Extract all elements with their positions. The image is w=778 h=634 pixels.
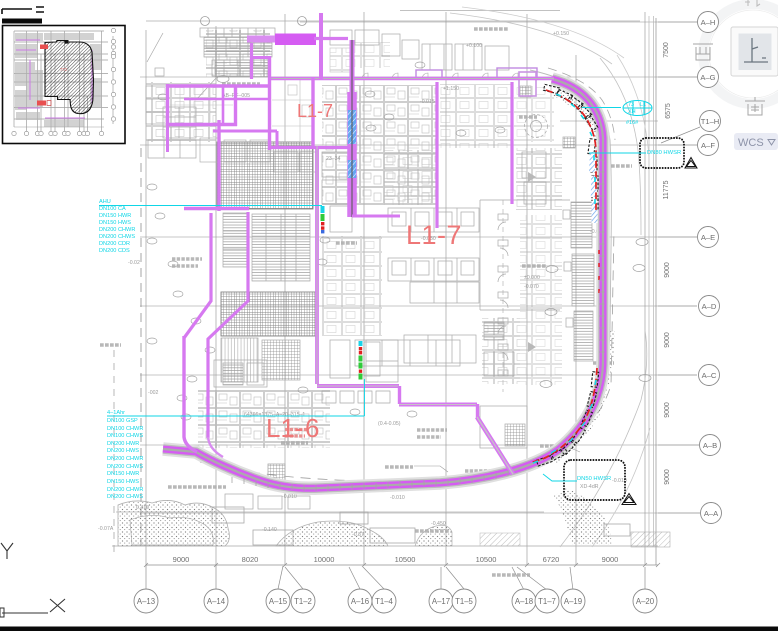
- svg-text:DN200 CHWR: DN200 CHWR: [99, 227, 135, 233]
- svg-text:9000: 9000: [173, 555, 190, 564]
- svg-text:10500: 10500: [476, 555, 497, 564]
- svg-text:DN150 HWS: DN150 HWS: [107, 479, 139, 485]
- svg-text:4–1Ahr: 4–1Ahr: [107, 410, 125, 416]
- svg-text:6575: 6575: [665, 103, 672, 119]
- svg-text:WCS: WCS: [738, 137, 764, 149]
- svg-text:DN150 HWR: DN150 HWR: [99, 213, 131, 219]
- svg-text:DN200 CHWS: DN200 CHWS: [99, 234, 135, 240]
- svg-text:T1–2: T1–2: [294, 597, 312, 606]
- svg-text:A–A: A–A: [704, 509, 719, 518]
- svg-text:DN200 CHWR: DN200 CHWR: [107, 456, 143, 462]
- svg-text:6720: 6720: [543, 555, 560, 564]
- svg-text:A–G: A–G: [700, 73, 715, 82]
- svg-text:A–18: A–18: [515, 597, 533, 606]
- svg-text:-0.37: -0.37: [352, 532, 364, 538]
- svg-text:L1-7: L1-7: [297, 101, 333, 121]
- svg-text:-0.07A: -0.07A: [98, 526, 114, 532]
- svg-text:A–16: A–16: [351, 597, 369, 606]
- svg-text:DN200 CDS: DN200 CDS: [99, 248, 130, 254]
- svg-text:A–20: A–20: [636, 597, 655, 606]
- svg-text:10500: 10500: [395, 555, 416, 564]
- svg-text:+0.100: +0.100: [466, 43, 482, 49]
- svg-text:9000: 9000: [664, 262, 671, 278]
- svg-text:T1–7: T1–7: [538, 597, 556, 606]
- svg-text:A–15: A–15: [269, 597, 288, 606]
- svg-text:-0.140: -0.140: [262, 527, 277, 533]
- svg-text:T1–5: T1–5: [455, 597, 473, 606]
- svg-text:10000: 10000: [314, 555, 335, 564]
- svg-text:L1: L1: [640, 102, 646, 108]
- svg-text:DN150 HWS: DN150 HWS: [99, 220, 131, 226]
- svg-text:9000: 9000: [664, 469, 671, 485]
- svg-text:A–F: A–F: [701, 141, 715, 150]
- svg-text:9000: 9000: [664, 402, 671, 418]
- svg-text:DN100 CHWS: DN100 CHWS: [107, 433, 143, 439]
- svg-text:-0.015: -0.015: [420, 99, 435, 105]
- svg-text:6: 6: [305, 413, 319, 443]
- svg-text:-002: -002: [148, 390, 158, 396]
- svg-text:DN200 CHWR: DN200 CHWR: [107, 487, 143, 493]
- svg-text:-0.02: -0.02: [128, 260, 140, 266]
- svg-text:A–H: A–H: [701, 18, 716, 27]
- svg-text:DN200 CDR: DN200 CDR: [99, 241, 130, 247]
- svg-text:+0.150: +0.150: [553, 31, 569, 37]
- svg-text:23–34: 23–34: [326, 156, 341, 162]
- svg-text:73: 73: [628, 102, 634, 108]
- svg-text:A–14: A–14: [207, 597, 226, 606]
- svg-text:A–B: A–B: [703, 441, 717, 450]
- svg-text:DN200 HWR: DN200 HWR: [107, 441, 139, 447]
- svg-text:DN200 CHWS: DN200 CHWS: [107, 464, 143, 470]
- svg-text:XH: XH: [628, 109, 636, 115]
- svg-text:772: 772: [60, 67, 68, 72]
- svg-text:DN50 HWSR: DN50 HWSR: [577, 476, 611, 482]
- svg-text:A–17: A–17: [432, 597, 450, 606]
- svg-text:+1.150: +1.150: [443, 86, 459, 92]
- svg-text:9000: 9000: [602, 555, 619, 564]
- svg-text:A–C: A–C: [702, 371, 717, 380]
- svg-text:DN200 CHWS: DN200 CHWS: [107, 494, 143, 500]
- svg-text:0.410: 0.410: [136, 505, 149, 511]
- svg-text:DN80 HWSR: DN80 HWSR: [647, 150, 681, 156]
- svg-text:DN100 CHWR: DN100 CHWR: [107, 426, 143, 432]
- svg-text:DN100 CA: DN100 CA: [99, 206, 126, 212]
- svg-text:DN150 HWR: DN150 HWR: [107, 471, 139, 477]
- svg-text:#16#: #16#: [626, 120, 639, 126]
- svg-text:A–E: A–E: [701, 233, 715, 242]
- svg-text:(0.4-0.05): (0.4-0.05): [378, 421, 401, 427]
- svg-text:DN100 GSP: DN100 GSP: [107, 418, 138, 424]
- svg-text:7500: 7500: [663, 42, 670, 58]
- svg-text:T1–H: T1–H: [701, 117, 720, 126]
- svg-text:-0.070: -0.070: [524, 284, 539, 290]
- svg-text:L1-: L1-: [266, 413, 304, 443]
- svg-text:-0.010: -0.010: [282, 494, 297, 500]
- svg-text:XD-4dR: XD-4dR: [580, 484, 599, 490]
- svg-text:L1-7: L1-7: [406, 220, 462, 250]
- svg-text:T1–4: T1–4: [375, 597, 393, 606]
- svg-text:A–13: A–13: [137, 597, 155, 606]
- svg-text:-0.010: -0.010: [390, 495, 405, 501]
- svg-text:±0.000: ±0.000: [524, 275, 540, 281]
- svg-text:-0.450: -0.450: [431, 521, 446, 527]
- svg-text:11775: 11775: [663, 180, 670, 199]
- svg-text:AHU: AHU: [99, 199, 111, 205]
- svg-text:8020: 8020: [242, 555, 259, 564]
- svg-text:A–D: A–D: [702, 302, 717, 311]
- svg-text:DN200 HWS: DN200 HWS: [107, 448, 139, 454]
- svg-text:9000: 9000: [664, 332, 671, 348]
- svg-text:A–19: A–19: [564, 597, 582, 606]
